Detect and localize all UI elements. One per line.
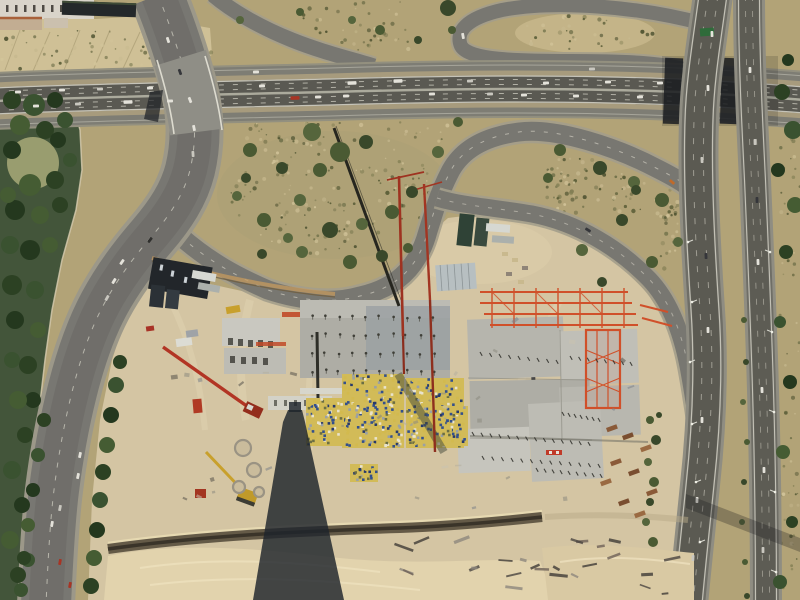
formwork-panel	[398, 386, 401, 389]
scrub-dot	[248, 127, 252, 131]
formwork-panel	[451, 388, 454, 391]
formwork-panel	[315, 400, 318, 403]
scrub-dot	[327, 201, 329, 203]
formwork-panel	[384, 386, 387, 389]
scrub-dot	[359, 123, 363, 127]
scrub-dot	[660, 255, 662, 257]
formwork-panel	[312, 412, 315, 415]
scrub-dot	[343, 210, 345, 212]
bush	[616, 214, 628, 226]
formwork-panel	[352, 427, 355, 430]
formwork-panel	[453, 435, 456, 438]
formwork-panel	[418, 381, 421, 384]
scrub-dot	[426, 172, 429, 175]
scrub-dot	[33, 35, 36, 38]
bush	[236, 16, 244, 24]
barrier	[546, 450, 562, 455]
formwork-panel	[337, 433, 340, 436]
scrub-dot	[319, 31, 322, 34]
scrub-dot	[789, 504, 793, 508]
scrub-dot	[238, 214, 241, 217]
formwork-panel	[345, 403, 348, 406]
scrub-dot	[330, 166, 333, 169]
shrub	[651, 435, 661, 445]
park-tree	[2, 275, 22, 295]
formwork-panel	[384, 444, 387, 447]
shrub	[646, 416, 654, 424]
formwork-panel	[353, 403, 356, 406]
formwork-panel	[417, 436, 420, 439]
scrub-dot	[556, 167, 558, 169]
scrub-dot	[231, 192, 232, 193]
scrub-dot	[583, 195, 587, 199]
scrub-dot	[245, 136, 249, 140]
lamp-post	[774, 491, 777, 494]
median-bush	[744, 439, 750, 445]
column	[418, 316, 421, 319]
scrub-dot	[72, 46, 76, 50]
scrub-dot	[209, 50, 213, 54]
bush	[414, 36, 422, 44]
scrub-dot	[612, 196, 616, 200]
bush	[232, 191, 242, 201]
scrub-dot	[284, 193, 286, 195]
formwork-panel	[395, 395, 398, 398]
vehicle	[706, 85, 709, 91]
scrub-dot	[399, 121, 401, 123]
scrub-dot	[599, 188, 602, 191]
formwork-panel	[454, 424, 457, 427]
formwork-panel	[379, 385, 382, 388]
scrub-dot	[659, 215, 662, 218]
scrub-dot	[437, 140, 440, 143]
scrub-dot	[308, 234, 311, 237]
bush	[403, 243, 413, 253]
scrub-dot	[124, 38, 126, 40]
scrub-dot	[661, 241, 665, 245]
scrub-dot	[796, 558, 798, 560]
formwork-panel	[393, 429, 396, 432]
scrub-dot	[356, 170, 357, 171]
scrub-dot	[597, 17, 601, 21]
scrub-dot	[560, 171, 562, 173]
formwork-panel	[398, 440, 401, 443]
formwork-panel	[460, 400, 463, 403]
formwork-panel	[346, 415, 349, 418]
slab	[457, 427, 530, 473]
column	[377, 314, 380, 317]
park-tree	[63, 153, 77, 167]
scrub-dot	[347, 238, 350, 241]
scrub-dot	[620, 178, 622, 180]
bush	[294, 194, 306, 206]
scrub-dot	[310, 144, 312, 146]
scrub-dot	[779, 210, 783, 214]
formwork-panel	[352, 374, 355, 377]
formwork-panel	[346, 439, 349, 442]
scrub-dot	[405, 130, 408, 133]
scrub-dot	[336, 186, 340, 190]
formwork-panel	[416, 432, 419, 435]
formwork-panel	[340, 403, 343, 406]
scrub-dot	[105, 56, 108, 59]
scrub-dot	[675, 200, 679, 204]
formwork-panel	[366, 409, 369, 412]
formwork-panel	[356, 479, 359, 482]
scrub-dot	[142, 45, 145, 48]
formwork-panel	[370, 475, 373, 478]
park-tree	[42, 237, 58, 253]
formwork-panel	[456, 434, 459, 437]
vehicle	[33, 104, 39, 107]
scrub-dot	[263, 140, 267, 144]
bush	[376, 250, 388, 262]
scrub-dot	[333, 208, 336, 211]
scrub-dot	[787, 213, 789, 215]
site-material	[455, 465, 461, 467]
scrub-dot	[276, 151, 279, 154]
column	[339, 333, 342, 336]
formwork-panel	[366, 475, 369, 478]
scrub-dot	[656, 211, 660, 215]
scrub-dot	[242, 199, 244, 201]
formwork-panel	[388, 435, 391, 438]
scrub-dot	[558, 30, 562, 34]
formwork-panel	[440, 414, 443, 417]
scrub-dot	[305, 174, 307, 176]
scrub-dot	[584, 177, 587, 180]
vehicle	[343, 94, 349, 97]
formwork-panel	[428, 390, 431, 393]
scrub-dot	[603, 22, 606, 25]
bush	[631, 185, 641, 195]
formwork-panel	[435, 395, 438, 398]
aerial-photo-frame: { "meta": { "subject": "aerial photograp…	[0, 0, 800, 600]
lamp-post	[689, 361, 692, 364]
scrub-dot	[574, 211, 578, 215]
scrub-dot	[89, 42, 91, 44]
scrub-dot	[440, 131, 442, 133]
shrub	[649, 477, 659, 487]
scrub-dot	[797, 504, 800, 507]
scrub-dot	[615, 192, 618, 195]
bush	[453, 117, 463, 127]
scrub-dot	[315, 239, 319, 243]
formwork-panel	[367, 478, 370, 481]
formwork-panel	[390, 435, 393, 438]
formwork-panel	[413, 430, 416, 433]
scrub-dot	[414, 136, 417, 139]
bush	[348, 16, 356, 24]
formwork-panel	[352, 377, 355, 380]
scrub-dot	[278, 227, 282, 231]
scrub-dot	[323, 136, 325, 138]
formwork-panel	[348, 380, 351, 383]
formwork-panel	[327, 442, 330, 445]
scrub-dot	[404, 133, 407, 136]
scrub-dot	[401, 168, 404, 171]
white-strip	[300, 388, 342, 394]
formwork-panel	[424, 408, 427, 411]
scrub-dot	[571, 198, 575, 202]
scrub-dot	[291, 136, 295, 140]
formwork-panel	[442, 398, 445, 401]
scrub-dot	[272, 162, 274, 164]
scrub-dot	[419, 132, 420, 133]
street-tree	[108, 377, 124, 393]
column	[365, 352, 368, 355]
scrub-dot	[791, 396, 795, 400]
park-tree	[25, 392, 41, 408]
scrub-dot	[250, 191, 252, 193]
formwork-panel	[455, 387, 458, 390]
formwork-panel	[378, 381, 381, 384]
formwork-panel	[374, 386, 377, 389]
vehicle	[191, 151, 194, 157]
lamp-post	[695, 481, 698, 484]
formwork-panel	[328, 422, 331, 425]
scrub-dot	[11, 44, 13, 46]
scrub-dot	[596, 198, 599, 201]
scrub-dot	[393, 189, 395, 191]
scrub-dot	[332, 187, 335, 190]
lamp-post	[687, 241, 690, 244]
scrub-dot	[794, 168, 796, 170]
scrub-dot	[309, 186, 312, 189]
scrub-dot	[259, 138, 262, 141]
scrub-dot	[342, 29, 344, 31]
median-bush	[741, 479, 747, 485]
bush	[296, 246, 308, 258]
formwork-panel	[375, 423, 378, 426]
bush	[303, 123, 321, 141]
park-tree	[19, 356, 37, 374]
lamp-post	[773, 411, 776, 414]
scrub-dot	[593, 33, 596, 36]
formwork-panel	[387, 427, 390, 430]
debris-board	[641, 573, 653, 577]
scrub-dot	[662, 266, 666, 270]
formwork-panel	[370, 441, 373, 444]
bush	[330, 142, 350, 162]
scrub-dot	[338, 230, 340, 232]
scrub-dot	[316, 234, 319, 237]
scrub-dot	[606, 20, 608, 22]
scrub-dot	[274, 155, 276, 157]
formwork-panel	[414, 443, 417, 446]
site-material	[563, 496, 568, 501]
scrub-dot	[406, 41, 408, 43]
scrub-dot	[343, 228, 345, 230]
scrub-dot	[795, 472, 799, 476]
vehicle	[123, 100, 132, 104]
formwork-panel	[456, 397, 459, 400]
scrub-dot	[343, 38, 347, 42]
scrub-dot	[629, 197, 632, 200]
scrub-dot	[129, 63, 132, 66]
scrub-dot	[569, 191, 573, 195]
street-tree	[113, 355, 127, 369]
vehicle	[657, 81, 663, 84]
bush	[440, 0, 456, 16]
formwork-panel	[355, 409, 358, 412]
formwork-panel	[414, 390, 417, 393]
scrub-dot	[315, 251, 319, 255]
scrub-dot	[790, 437, 792, 439]
scrub-dot	[781, 262, 783, 264]
formwork-panel	[399, 397, 402, 400]
scrub-dot	[64, 59, 68, 63]
formwork-panel	[356, 375, 359, 378]
scrub-dot	[314, 206, 316, 208]
scrub-dot	[790, 158, 792, 160]
formwork-panel	[328, 431, 331, 434]
scrub-dot	[140, 49, 143, 52]
park-tree	[4, 352, 20, 368]
scrub-dot	[387, 128, 390, 131]
scrub-dot	[330, 202, 332, 204]
scrub-dot	[290, 185, 292, 187]
formwork-panel	[446, 419, 449, 422]
formwork-panel	[423, 429, 426, 432]
scrub-dot	[583, 18, 585, 20]
scrub-dot	[353, 202, 356, 205]
scrub-dot	[277, 240, 281, 244]
scrub-dot	[322, 197, 326, 201]
scrub-dot	[543, 29, 546, 32]
scrub-dot	[556, 183, 559, 186]
formwork-panel	[413, 416, 416, 419]
scrub-dot	[793, 262, 796, 265]
scrub-dot	[305, 142, 309, 146]
scrub-dot	[398, 160, 401, 163]
median-bush	[742, 559, 748, 565]
formwork-panel	[374, 426, 377, 429]
lamp-post	[775, 571, 778, 574]
scrub-dot	[563, 158, 566, 161]
formwork-panel	[389, 441, 392, 444]
lamp-post	[691, 301, 694, 304]
column	[433, 335, 436, 338]
formwork-panel	[396, 431, 399, 434]
vehicle	[487, 92, 493, 95]
formwork-panel	[333, 405, 336, 408]
scrub-dot	[794, 413, 796, 415]
scrub-dot	[563, 203, 566, 206]
scrub-dot	[530, 40, 532, 42]
column	[420, 370, 423, 373]
park-tree	[50, 132, 66, 148]
formwork-panel	[362, 440, 365, 443]
formwork-panel	[372, 443, 375, 446]
scrub-dot	[295, 208, 299, 212]
scrub-dot	[244, 196, 246, 198]
column	[325, 368, 328, 371]
scrub-dot	[323, 149, 326, 152]
formwork-panel	[390, 427, 393, 430]
park-tree	[3, 141, 21, 159]
vehicle	[315, 95, 321, 98]
vehicle	[710, 31, 713, 37]
roadside-tree	[774, 84, 790, 100]
formwork-panel	[463, 406, 466, 409]
bush	[243, 143, 257, 157]
park-tree	[9, 391, 27, 409]
bush	[385, 205, 399, 219]
formwork-panel	[375, 421, 378, 424]
formwork-panel	[375, 437, 378, 440]
formwork-panel	[463, 438, 466, 441]
formwork-panel	[311, 415, 314, 418]
formwork-panel	[385, 407, 388, 410]
formwork-panel	[392, 379, 395, 382]
scrub-dot	[783, 519, 785, 521]
scrub-dot	[262, 177, 266, 181]
column	[392, 316, 395, 319]
scrub-dot	[59, 62, 62, 65]
vehicle	[749, 67, 752, 73]
scrub-dot	[673, 209, 675, 211]
bush	[597, 277, 607, 287]
site-material	[263, 372, 269, 374]
scrub-dot	[624, 205, 627, 208]
scrub-dot	[373, 34, 376, 37]
formwork-panel	[332, 419, 335, 422]
formwork-panel	[427, 378, 430, 381]
scrub-dot	[676, 223, 678, 225]
column	[324, 314, 327, 317]
formwork-panel	[361, 388, 364, 391]
formwork-panel	[332, 422, 335, 425]
formwork-panel	[344, 376, 347, 379]
formwork-panel	[357, 426, 360, 429]
formwork-panel	[348, 444, 351, 447]
formwork-panel	[329, 411, 332, 414]
scrub-dot	[285, 210, 288, 213]
scrub-dot	[279, 202, 281, 204]
scrub-dot	[566, 30, 568, 32]
formwork-panel	[361, 382, 364, 385]
formwork-panel	[450, 413, 453, 416]
scrub-dot	[395, 13, 398, 16]
formwork-panel	[323, 438, 326, 441]
formwork-panel	[366, 407, 369, 410]
column	[311, 314, 314, 317]
scrub-dot	[359, 24, 362, 27]
scrub-dot	[615, 37, 618, 40]
formwork-panel	[347, 423, 350, 426]
formwork-panel	[356, 389, 359, 392]
formwork-panel	[381, 444, 384, 447]
vehicle	[259, 84, 265, 87]
scrub-dot	[625, 196, 627, 198]
scrub-dot	[664, 221, 667, 224]
median-bush	[741, 317, 747, 323]
formwork-panel	[354, 471, 357, 474]
scrub-dot	[307, 6, 311, 10]
site-material	[341, 425, 344, 427]
scrub-dot	[594, 186, 598, 190]
formwork-panel	[453, 418, 456, 421]
formwork-panel	[450, 420, 453, 423]
scrub-dot	[294, 140, 298, 144]
park-tree	[0, 187, 16, 203]
scrub-dot	[256, 123, 258, 125]
formwork-panel	[329, 408, 332, 411]
formwork-panel	[308, 428, 311, 431]
formwork-panel	[309, 432, 312, 435]
scrub-dot	[304, 214, 306, 216]
